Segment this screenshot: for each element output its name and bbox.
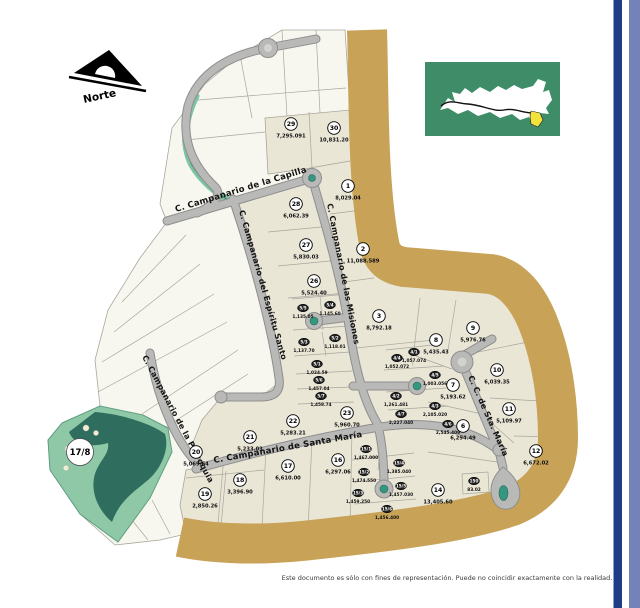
lot-area-text: 83.02 bbox=[467, 487, 481, 493]
lot-marker-17-8: 17/8 bbox=[67, 439, 94, 466]
plat-map-canvas: C. Campanario de la Capilla C. Campanari… bbox=[0, 0, 640, 608]
lot-id-text: 12 bbox=[532, 448, 541, 455]
lot-id-text: 23 bbox=[343, 410, 352, 417]
lot-id-text: 11 bbox=[505, 406, 514, 413]
lot-area-text: 8,792.18 bbox=[366, 326, 392, 332]
lot-area-text: 5,524.40 bbox=[301, 291, 327, 297]
lot-area-text: 1,135.05 bbox=[292, 314, 313, 320]
lot-id-text: 6 bbox=[461, 423, 465, 430]
park-id-text: 17/8 bbox=[70, 448, 91, 458]
lot-id-text: 15/5 bbox=[396, 484, 406, 489]
lot-area-text: 5,193.62 bbox=[440, 395, 466, 401]
lot-id-text: 18 bbox=[236, 477, 245, 484]
edge-stripes bbox=[614, 0, 640, 608]
lot-id-text: 19 bbox=[201, 491, 210, 498]
lot-id-text: 21 bbox=[246, 434, 255, 441]
park-tree-icon bbox=[63, 465, 68, 470]
park-tree-icon bbox=[83, 425, 89, 431]
lot-id-text: 4/6 bbox=[444, 422, 451, 427]
lot-id-text: 4/7 bbox=[397, 412, 404, 417]
lot-area-text: 1,003.056 bbox=[423, 381, 447, 387]
lot-area-text: 6,039.35 bbox=[484, 380, 510, 386]
lot-id-text: 4/3 bbox=[431, 404, 438, 409]
lot-id-text: 3 bbox=[377, 313, 381, 320]
culdesac-teardrop-island bbox=[499, 486, 508, 501]
culdesac-misiones-east-island bbox=[413, 382, 421, 390]
lot-id-text: 150 bbox=[470, 479, 479, 484]
disclaimer-text: Este documento es sólo con fines de repr… bbox=[282, 574, 613, 582]
lot-id-text: 4/2 bbox=[392, 394, 399, 399]
stripe-dark-blue bbox=[614, 0, 623, 608]
lot-area-text: 5,435.43 bbox=[423, 350, 449, 356]
lot-area-text: 1,052.072 bbox=[385, 364, 409, 370]
lot-area-text: 5,830.03 bbox=[293, 255, 319, 261]
lot-area-text: 6,062.39 bbox=[283, 214, 309, 220]
lot-id-text: 29 bbox=[287, 121, 296, 128]
lot-area-text: 5,283.21 bbox=[280, 431, 306, 437]
lot-id-text: 1 bbox=[346, 183, 350, 190]
lot-area-text: 5,069.64 bbox=[183, 462, 209, 468]
inset-locator-map bbox=[425, 62, 560, 136]
lot-area-text: 1,057.074 bbox=[402, 358, 426, 364]
lot-area-text: 5,233.03 bbox=[237, 447, 263, 453]
lot-id-text: 4/4 bbox=[393, 356, 400, 361]
lot-area-text: 6,610.00 bbox=[275, 476, 301, 482]
north-arrow-label: Norte bbox=[82, 87, 117, 106]
roundabout-capilla-island bbox=[309, 175, 316, 182]
lot-id-text: 26 bbox=[310, 278, 319, 285]
lot-area-text: 8,029.04 bbox=[335, 196, 361, 202]
lot-area-text: 7,295.091 bbox=[276, 134, 306, 140]
lot-area-text: 1,459.250 bbox=[346, 499, 370, 505]
lot-id-text: 9 bbox=[471, 325, 475, 332]
culdesac-santa-maria-island bbox=[380, 485, 388, 493]
lot-area-text: 1,457.04 bbox=[308, 386, 329, 392]
lot-id-text: 20 bbox=[192, 449, 201, 456]
lot-id-text: 10 bbox=[493, 367, 502, 374]
roundabout-sta-maria-island bbox=[458, 358, 467, 367]
lot-area-text: 1,118.01 bbox=[324, 344, 345, 350]
lot-area-text: 6,672.02 bbox=[523, 461, 549, 467]
lot-area-text: 1,024.59 bbox=[306, 370, 327, 376]
lot-area-text: 13,405.60 bbox=[423, 500, 453, 506]
north-arrow: Norte bbox=[69, 50, 146, 106]
lot-id-text: 7 bbox=[451, 382, 455, 389]
lot-id-text: 4/1 bbox=[410, 350, 417, 355]
junction-west bbox=[215, 391, 227, 403]
plat-map-page: C. Campanario de la Capilla C. Campanari… bbox=[0, 0, 640, 608]
lot-id-text: 16 bbox=[334, 457, 343, 464]
lot-id-text: 30 bbox=[330, 125, 339, 132]
lot-id-text: 4/5 bbox=[431, 373, 438, 378]
lot-id-text: 28 bbox=[292, 201, 301, 208]
roundabout-north-island bbox=[264, 44, 272, 52]
lot-area-text: 1,457.030 bbox=[389, 492, 413, 498]
lot-id-text: 5/3 bbox=[300, 340, 307, 345]
lot-area-text: 1,261.481 bbox=[384, 402, 408, 408]
lot-area-text: 6,294.49 bbox=[450, 436, 476, 442]
lot-id-text: 5/4 bbox=[326, 303, 333, 308]
lot-id-text: 15/4 bbox=[394, 461, 404, 466]
lot-id-text: 5/6 bbox=[315, 378, 322, 383]
lot-area-text: 1,456.400 bbox=[375, 515, 399, 521]
lot-area-text: 1,474.550 bbox=[352, 478, 376, 484]
lot-id-text: 27 bbox=[302, 242, 311, 249]
lot-area-text: 3,396.90 bbox=[227, 490, 253, 496]
lot-area-text: 11,088.589 bbox=[347, 259, 380, 265]
lot-id-text: 15/2 bbox=[359, 470, 369, 475]
lot-area-text: 2,105.020 bbox=[423, 412, 447, 418]
lot-area-text: 5,109.97 bbox=[496, 419, 522, 425]
lot-id-text: 5/7 bbox=[317, 394, 324, 399]
lot-area-text: 2,227.040 bbox=[389, 420, 413, 426]
lot-area-text: 1,458.74 bbox=[310, 402, 331, 408]
lot-id-text: 15/6 bbox=[382, 507, 392, 512]
lot-area-text: 2,545.409 bbox=[436, 430, 460, 436]
lot-id-text: 8 bbox=[434, 337, 438, 344]
lot-id-text: 2 bbox=[361, 246, 365, 253]
lot-area-text: 1,145.60 bbox=[319, 311, 340, 317]
lot-id-text: 22 bbox=[289, 418, 298, 425]
lot-id-text: 15/1 bbox=[361, 447, 371, 452]
lot-id-text: 5/5 bbox=[299, 306, 306, 311]
lot-area-text: 2,850.26 bbox=[192, 504, 218, 510]
lot-area-text: 6,297.06 bbox=[325, 470, 351, 476]
lot-id-text: 14 bbox=[434, 487, 443, 494]
lot-area-text: 5,960.70 bbox=[334, 423, 360, 429]
park-tree-icon bbox=[94, 431, 99, 436]
lot-id-text: 17 bbox=[284, 463, 293, 470]
lot-id-text: 5/1 bbox=[313, 362, 320, 367]
lot-area-text: 1,467.000 bbox=[354, 455, 378, 461]
lot-area-text: 10,831.20 bbox=[319, 138, 349, 144]
lot-area-text: 1,137.70 bbox=[293, 348, 314, 354]
stripe-light-blue bbox=[629, 0, 640, 608]
lot-area-text: 1,385.040 bbox=[387, 469, 411, 475]
lot-area-text: 5,976.76 bbox=[460, 338, 486, 344]
lot-id-text: 15/3 bbox=[353, 491, 363, 496]
lot-id-text: 5/2 bbox=[331, 336, 338, 341]
